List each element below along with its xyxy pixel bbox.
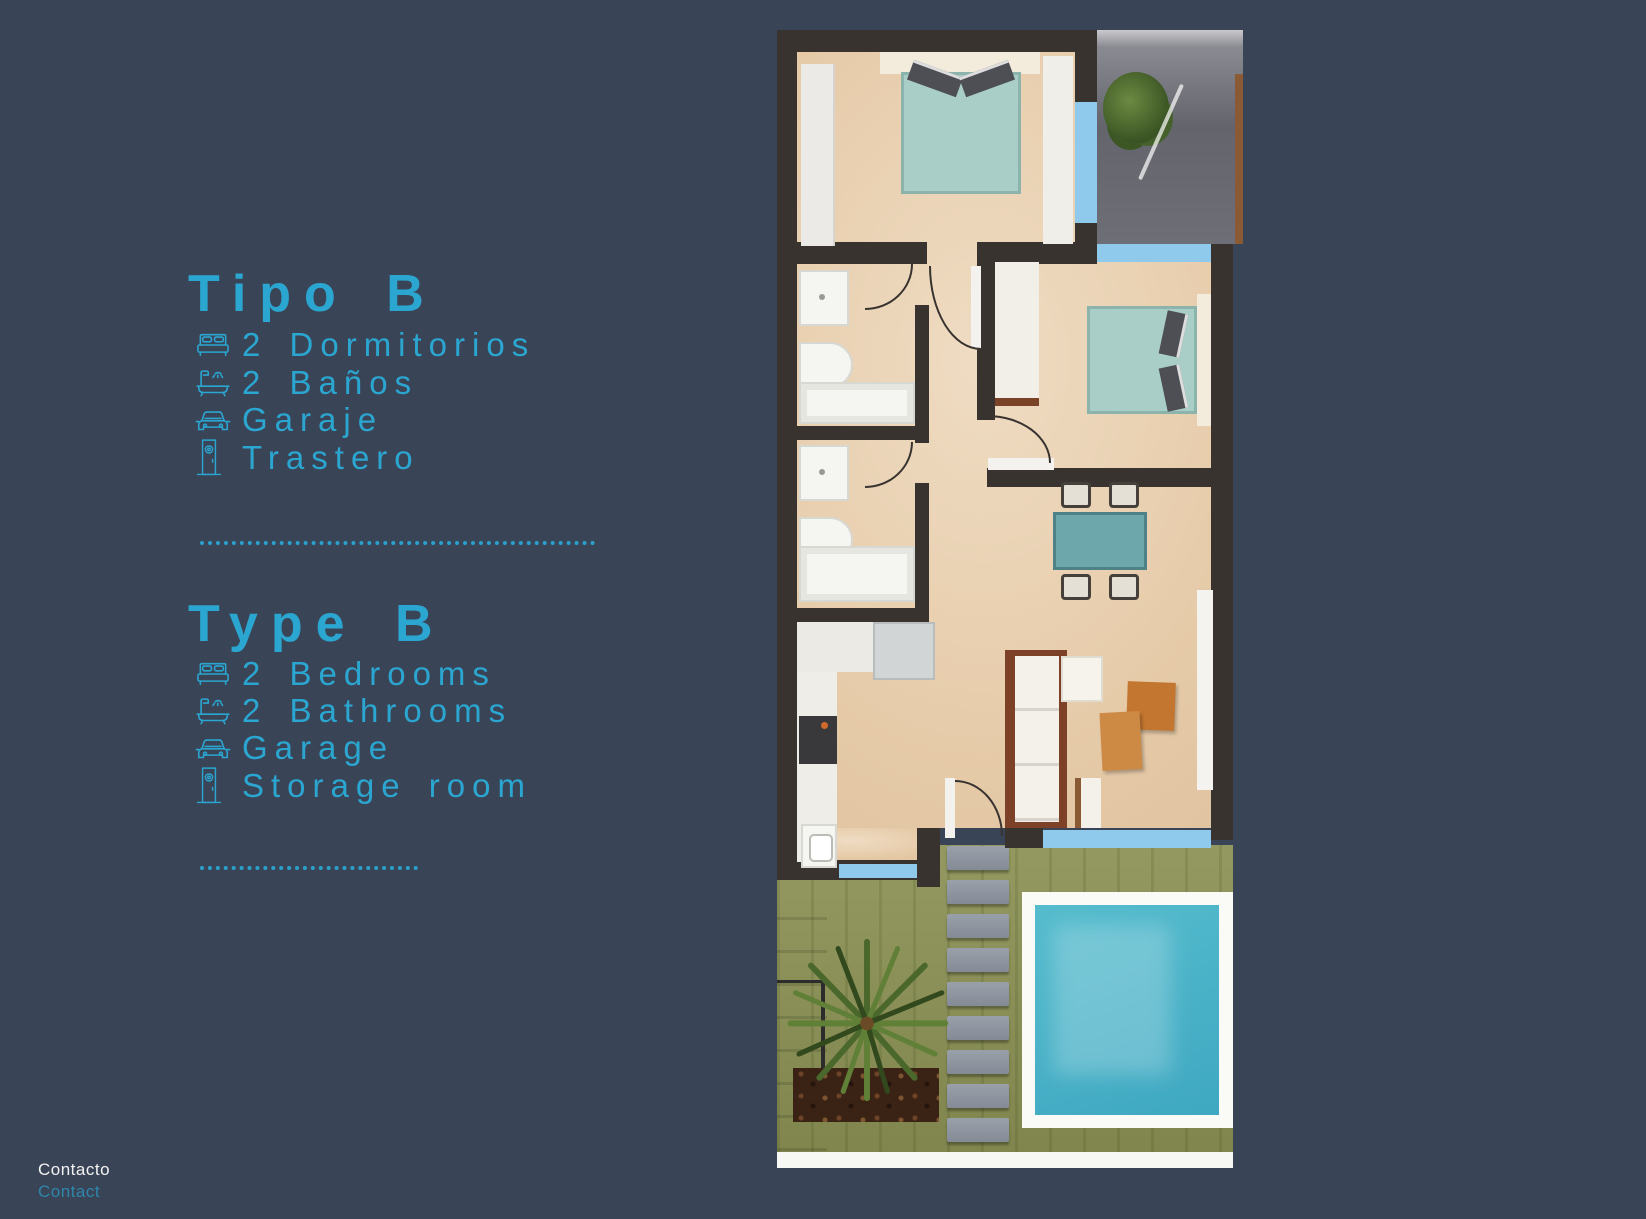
- sideboard: [1197, 590, 1213, 790]
- wall: [777, 30, 1097, 52]
- bathroom-sink: [799, 445, 849, 501]
- feature-label: 2 Bathrooms: [242, 692, 512, 730]
- feature-label: Garaje: [242, 401, 383, 439]
- brochure-page: Tipo B 2 Dormitorios 2 Baños Garaje Tras…: [0, 0, 1646, 1219]
- stepping-stone: [947, 846, 1009, 870]
- feature-row: Garage: [194, 729, 394, 767]
- stepping-stone: [947, 982, 1009, 1006]
- window: [839, 864, 917, 878]
- car-icon: [194, 404, 242, 436]
- dining-chair: [1109, 574, 1139, 600]
- dining-chair: [1061, 482, 1091, 508]
- cooktop: [799, 716, 837, 764]
- wardrobe: [801, 64, 835, 246]
- wardrobe: [995, 262, 1039, 406]
- feature-label: Trastero: [242, 439, 420, 477]
- feature-row: 2 Bathrooms: [194, 692, 512, 730]
- tv-unit: [1075, 778, 1101, 828]
- sofa-cushions: [1015, 656, 1059, 822]
- stepping-stone: [947, 914, 1009, 938]
- feature-label: 2 Baños: [242, 364, 418, 402]
- kitchen-sink: [801, 824, 837, 868]
- wall: [797, 608, 929, 622]
- wall: [1075, 30, 1097, 102]
- sofa-chaise: [1061, 656, 1103, 702]
- bathtub-icon: [194, 366, 242, 400]
- stepping-stone: [947, 1118, 1009, 1142]
- feature-row: 2 Dormitorios: [194, 326, 535, 364]
- section-heading-en: Type B: [188, 598, 446, 650]
- feature-row: Storage room: [194, 767, 532, 805]
- bed-headboard: [880, 52, 1040, 74]
- bed-icon: [194, 657, 242, 691]
- feature-row: Garaje: [194, 401, 383, 439]
- window: [1075, 102, 1097, 223]
- stepping-stone: [947, 1084, 1009, 1108]
- bed-headboard: [1197, 294, 1211, 426]
- feature-label: 2 Dormitorios: [242, 326, 535, 364]
- feature-row: Trastero: [194, 439, 420, 477]
- wall: [1075, 223, 1097, 264]
- window: [1097, 244, 1211, 262]
- palm-tree: [782, 935, 952, 1105]
- dining-table: [1053, 512, 1147, 570]
- coffee-table: [1100, 711, 1143, 771]
- feature-row: 2 Baños: [194, 364, 418, 402]
- bathtub-icon: [194, 694, 242, 728]
- wall: [1211, 244, 1233, 840]
- plan-bottom-margin: [777, 1152, 1233, 1168]
- wall: [915, 483, 929, 608]
- door-icon: [194, 766, 242, 806]
- floor-plan: [777, 30, 1243, 1168]
- door-leaf: [945, 778, 955, 838]
- terrace: [1097, 30, 1243, 244]
- bathtub: [799, 382, 915, 424]
- shower-tub: [799, 546, 915, 602]
- stepping-stone: [947, 880, 1009, 904]
- pool-water-highlight: [1053, 925, 1171, 1075]
- feature-label: Garage: [242, 729, 394, 767]
- contact-link-en[interactable]: Contact: [38, 1182, 100, 1202]
- stepping-stone: [947, 1050, 1009, 1074]
- terrace-wood-edge: [1235, 74, 1243, 244]
- wall: [1005, 828, 1043, 848]
- dotted-divider: [200, 866, 418, 870]
- bathroom-sink: [799, 270, 849, 326]
- dining-chair: [1061, 574, 1091, 600]
- wall: [777, 30, 797, 880]
- dining-chair: [1109, 482, 1139, 508]
- swimming-pool: [1035, 905, 1219, 1115]
- dotted-divider: [200, 541, 595, 545]
- bed: [901, 72, 1021, 194]
- pool-deck: [1022, 892, 1233, 1128]
- wardrobe: [1043, 56, 1073, 244]
- stepping-stone: [947, 948, 1009, 972]
- door-icon: [194, 438, 242, 478]
- feature-row: 2 Bedrooms: [194, 655, 496, 693]
- contact-link-es[interactable]: Contacto: [38, 1160, 110, 1180]
- feature-label: Storage room: [242, 767, 532, 805]
- window: [1043, 830, 1211, 848]
- section-heading-es: Tipo B: [188, 268, 437, 320]
- wall: [797, 426, 915, 440]
- car-icon: [194, 732, 242, 764]
- bed-icon: [194, 328, 242, 362]
- wall: [915, 305, 929, 443]
- stepping-stone: [947, 1016, 1009, 1040]
- feature-label: 2 Bedrooms: [242, 655, 496, 693]
- kitchen-island: [873, 622, 935, 680]
